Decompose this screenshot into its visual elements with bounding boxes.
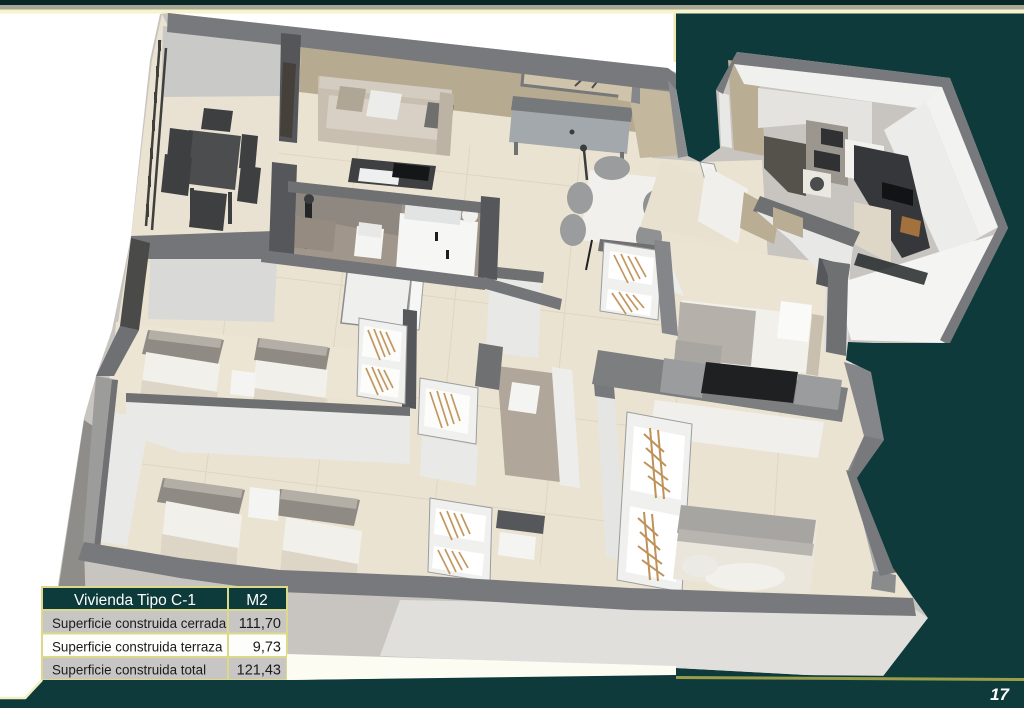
svg-text:Superficie construida cerrada: Superficie construida cerrada [52,616,227,631]
svg-text:Superficie construida total: Superficie construida total [52,663,206,678]
svg-text:9,73: 9,73 [253,640,281,656]
svg-text:121,43: 121,43 [237,663,281,679]
svg-text:111,70: 111,70 [239,616,281,632]
svg-text:Superficie construida terraza: Superficie construida terraza [52,640,223,655]
svg-text:17: 17 [990,685,1010,704]
svg-text:M2: M2 [246,592,268,609]
svg-text:Vivienda Tipo C-1: Vivienda Tipo C-1 [74,592,196,609]
